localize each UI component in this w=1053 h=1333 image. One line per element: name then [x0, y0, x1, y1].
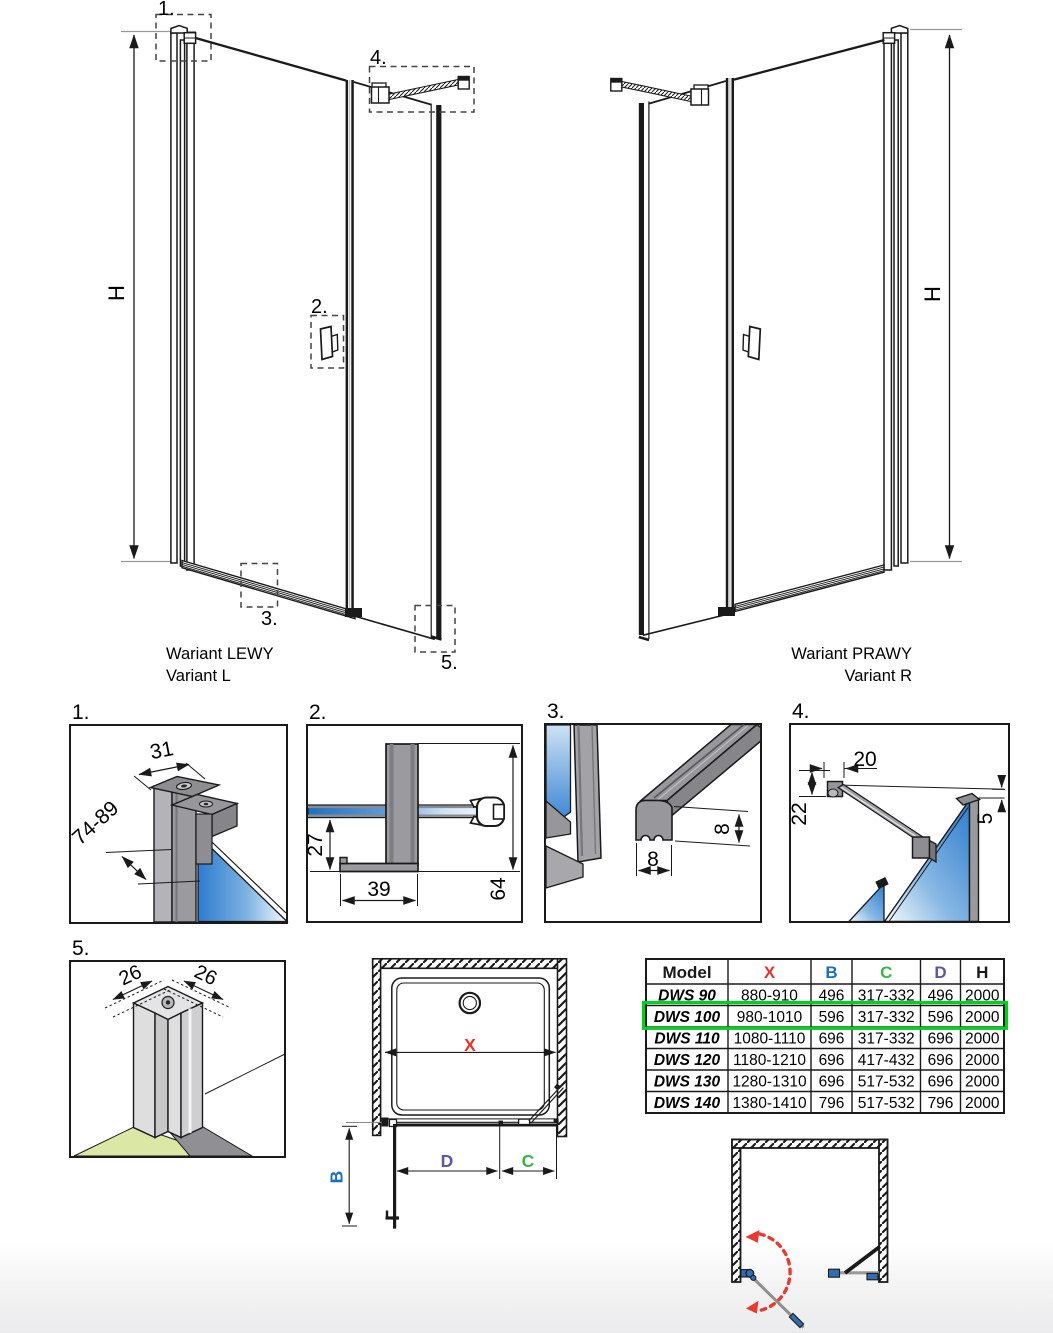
- svg-text:X: X: [764, 963, 776, 982]
- svg-text:696: 696: [928, 1052, 954, 1069]
- svg-text:3.: 3.: [261, 608, 278, 630]
- svg-text:1080-1110: 1080-1110: [734, 1030, 806, 1047]
- svg-text:517-532: 517-532: [858, 1095, 915, 1112]
- svg-text:4.: 4.: [792, 700, 810, 723]
- svg-text:DWS 130: DWS 130: [654, 1073, 721, 1090]
- svg-text:2000: 2000: [965, 1052, 1000, 1069]
- svg-text:DWS 110: DWS 110: [654, 1030, 720, 1047]
- svg-text:1380-1410: 1380-1410: [732, 1095, 807, 1112]
- svg-text:DWS 100: DWS 100: [654, 1009, 721, 1026]
- svg-text:596: 596: [819, 1009, 845, 1026]
- svg-text:Wariant PRAWY: Wariant PRAWY: [791, 645, 912, 663]
- svg-text:Variant L: Variant L: [166, 667, 231, 685]
- svg-text:8: 8: [647, 848, 659, 871]
- svg-text:D: D: [441, 1151, 454, 1171]
- svg-text:8: 8: [711, 823, 734, 835]
- svg-text:2000: 2000: [965, 1030, 1000, 1047]
- svg-text:27: 27: [304, 833, 327, 856]
- svg-text:2.: 2.: [311, 296, 328, 318]
- svg-text:4.: 4.: [370, 47, 387, 69]
- svg-text:1180-1210: 1180-1210: [733, 1052, 806, 1069]
- svg-text:317-332: 317-332: [858, 1030, 915, 1047]
- svg-text:2000: 2000: [965, 1073, 1000, 1090]
- svg-text:596: 596: [928, 1009, 954, 1026]
- svg-text:2000: 2000: [965, 1009, 1000, 1026]
- svg-text:2.: 2.: [309, 701, 327, 724]
- svg-text:DWS 120: DWS 120: [654, 1052, 721, 1069]
- svg-text:796: 796: [928, 1095, 954, 1112]
- svg-text:5.: 5.: [441, 652, 458, 674]
- svg-text:1.: 1.: [72, 701, 90, 724]
- svg-text:2000: 2000: [965, 1095, 1000, 1112]
- svg-text:64: 64: [487, 877, 510, 901]
- svg-text:C: C: [522, 1151, 535, 1171]
- svg-text:D: D: [934, 963, 946, 982]
- svg-text:696: 696: [819, 1073, 845, 1090]
- svg-text:X: X: [464, 1035, 476, 1055]
- svg-text:B: B: [327, 1171, 347, 1184]
- svg-text:517-532: 517-532: [858, 1073, 915, 1090]
- svg-text:H: H: [920, 286, 945, 302]
- svg-text:317-332: 317-332: [858, 1009, 915, 1026]
- svg-text:31: 31: [148, 737, 175, 764]
- svg-text:39: 39: [367, 878, 390, 901]
- svg-text:20: 20: [853, 748, 876, 771]
- svg-text:Variant R: Variant R: [844, 667, 912, 685]
- svg-text:1280-1310: 1280-1310: [732, 1073, 807, 1090]
- svg-text:B: B: [825, 963, 837, 982]
- svg-text:696: 696: [928, 1030, 954, 1047]
- svg-text:696: 696: [819, 1052, 845, 1069]
- svg-text:C: C: [880, 963, 892, 982]
- svg-text:Model: Model: [662, 963, 711, 982]
- svg-text:796: 796: [819, 1095, 845, 1112]
- svg-text:696: 696: [819, 1030, 845, 1047]
- svg-text:980-1010: 980-1010: [737, 1009, 803, 1026]
- svg-text:417-432: 417-432: [858, 1052, 915, 1069]
- svg-text:H: H: [104, 285, 129, 301]
- svg-text:5: 5: [974, 813, 997, 825]
- svg-text:5.: 5.: [72, 937, 90, 960]
- svg-text:22: 22: [788, 802, 811, 825]
- svg-text:H: H: [976, 963, 988, 982]
- svg-text:3.: 3.: [547, 700, 565, 723]
- svg-text:Wariant LEWY: Wariant LEWY: [166, 645, 274, 663]
- svg-text:1.: 1.: [158, 0, 175, 20]
- svg-text:696: 696: [928, 1073, 954, 1090]
- svg-text:DWS 140: DWS 140: [654, 1095, 721, 1112]
